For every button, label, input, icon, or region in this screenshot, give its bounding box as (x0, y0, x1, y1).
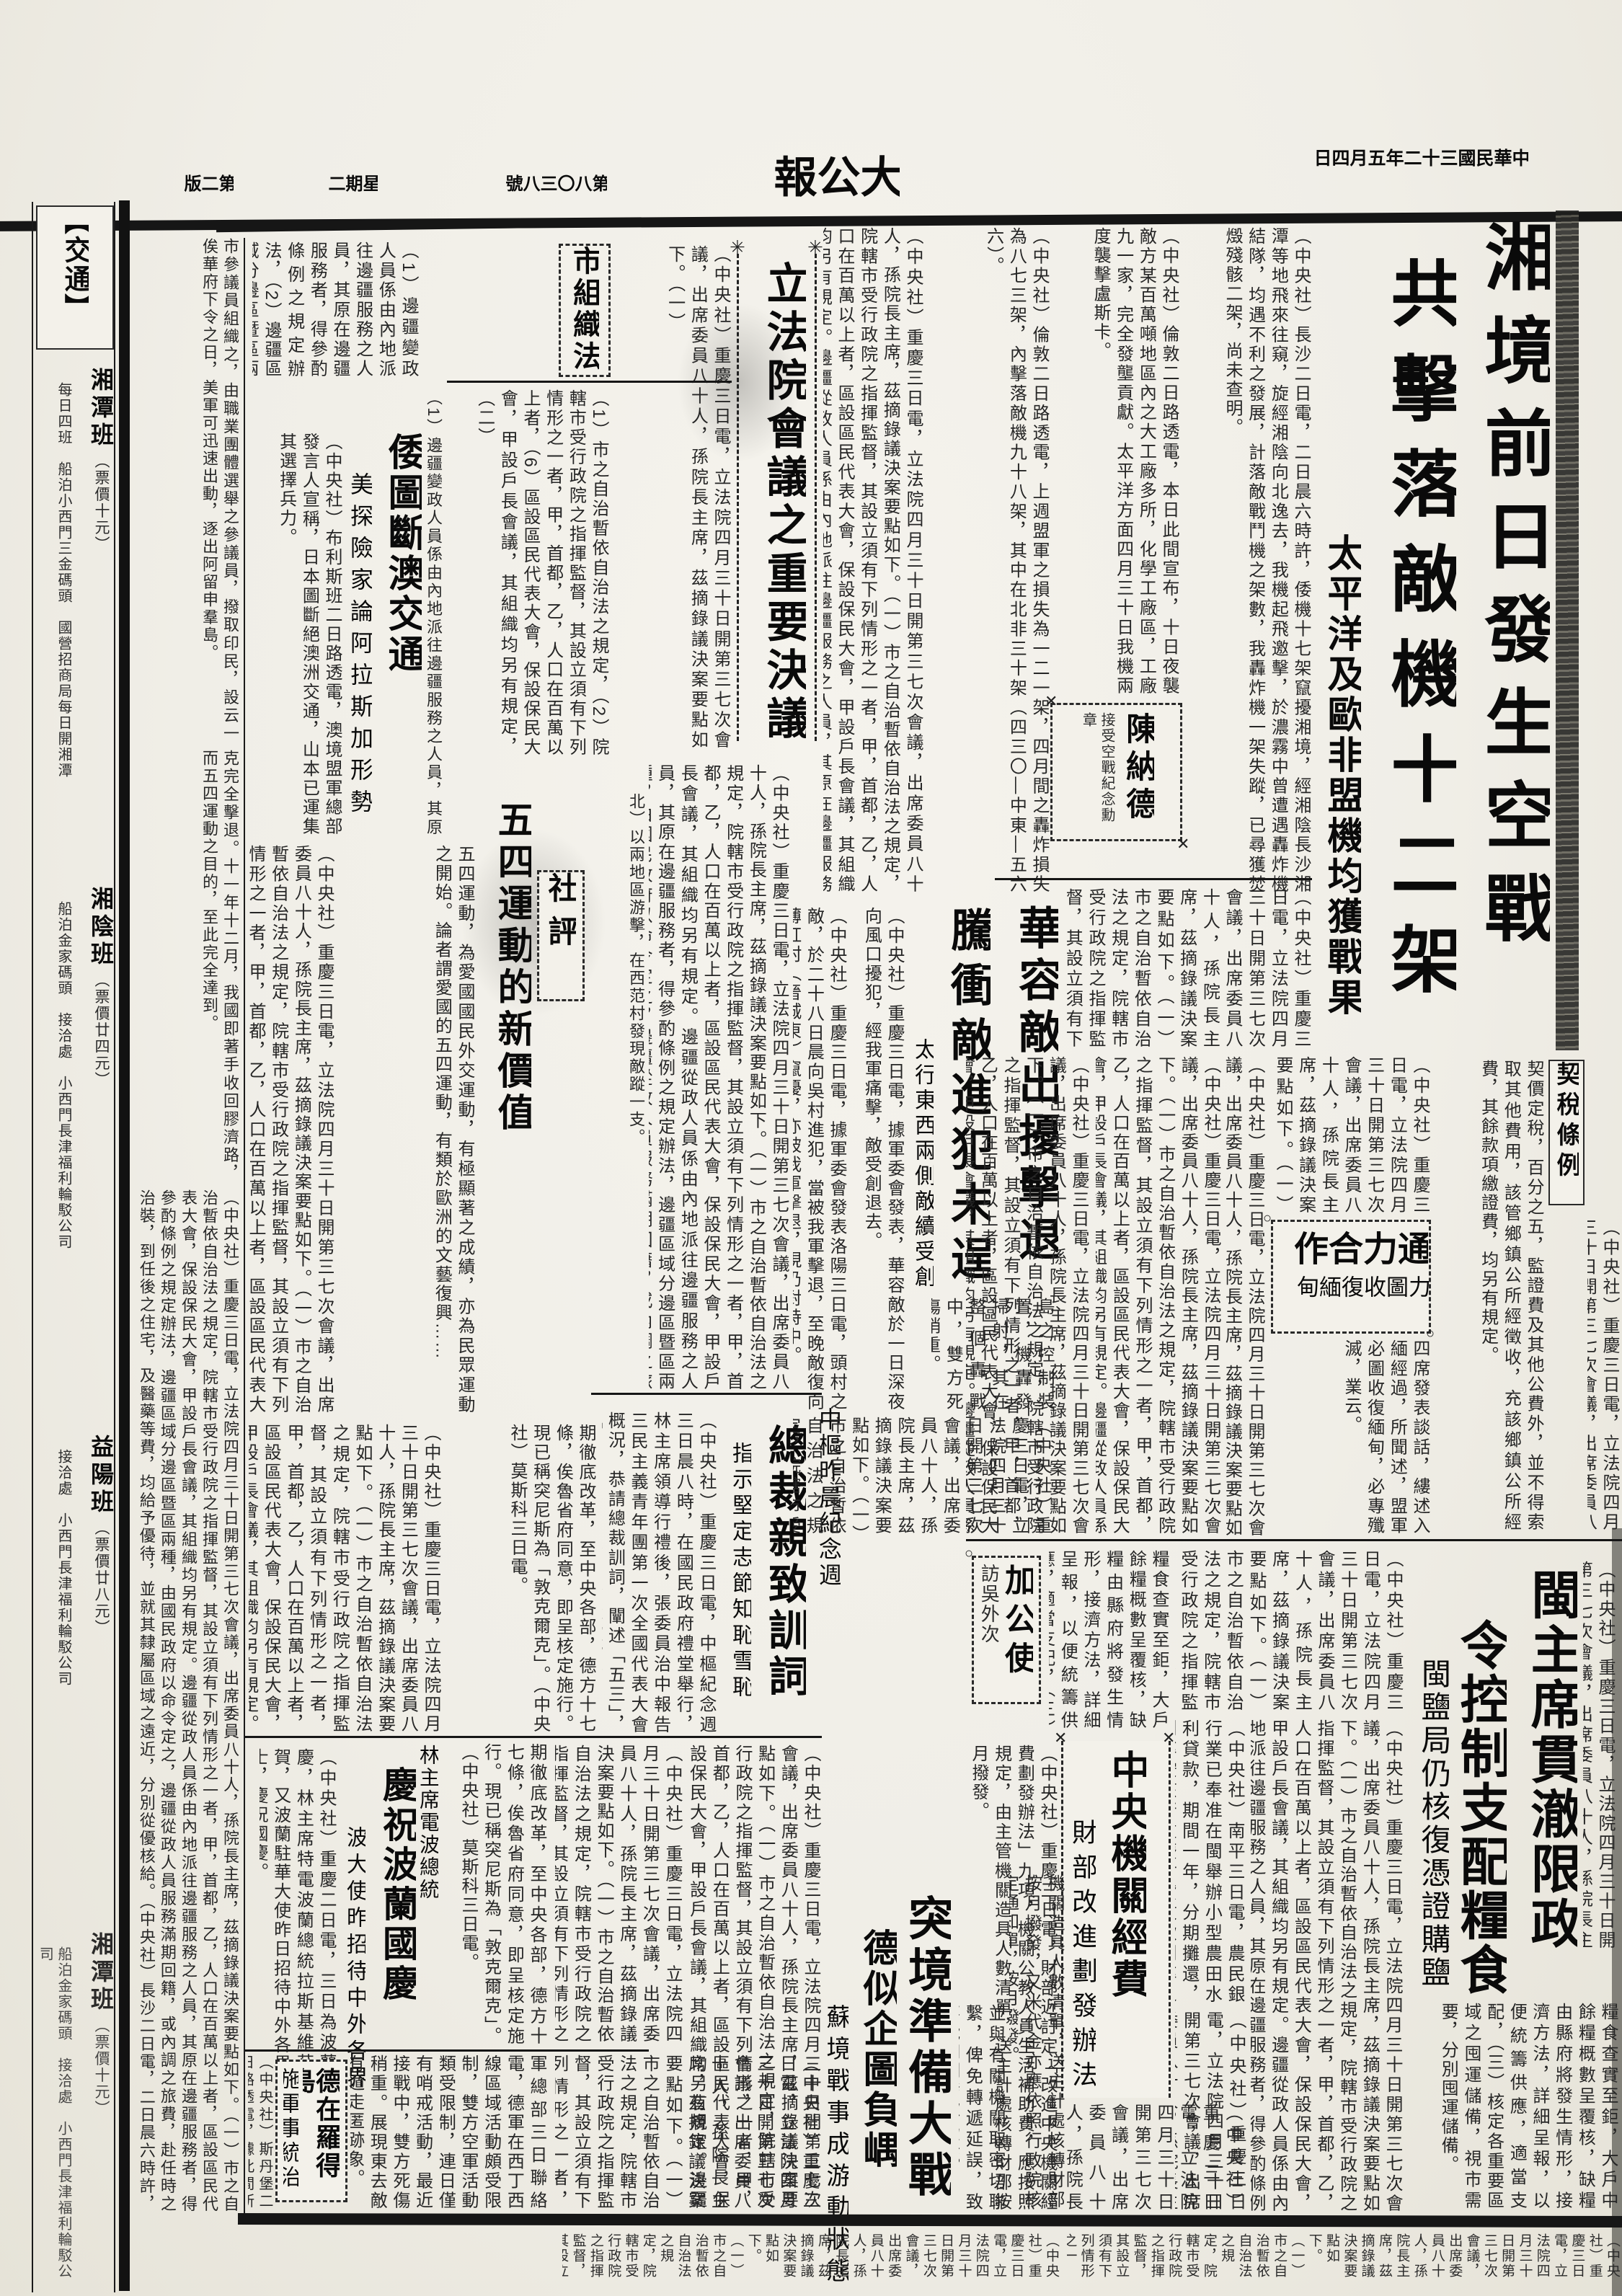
section-rule (447, 381, 732, 383)
editorial-label-box: 社評 (537, 870, 585, 1001)
lead-body-col4: （中央社）重慶三日電，立法院四月三十日開第三七次會議，出席委員八十人，孫院長主席… (823, 227, 924, 894)
editorial-body-col2: （中央社）重慶三日電，立法院四月三十日開第三七次會議，出席委員八十人，孫院長主席… (245, 845, 335, 1414)
tax-headline: 契稅條例 (1554, 1061, 1579, 1204)
column-divider (244, 238, 245, 2213)
masthead-weekday: 星期二 (309, 174, 378, 195)
ad-route-name: 湘潭班 (88, 1932, 114, 2014)
ads-header-label: 交通 (61, 236, 89, 293)
box-cross-icon: ✕ (1162, 1730, 1175, 1746)
tunisia-headline-1: 突境準備大戰 (899, 1894, 951, 2206)
australia-subheadline: 美探險家論阿拉斯加形勢 (346, 472, 372, 833)
funds-subheadline: 財部改進劃發辦法 (1067, 1819, 1096, 2096)
scan-streak-right (1556, 210, 1579, 1050)
editorial-continuation-col: 克完全擊退。十一年十二月，我國即著手收回膠濟路，而五四運動之目的，至此完全達到。 (136, 750, 241, 1182)
flower-mark-icon: ✳ (730, 238, 745, 257)
cooperation-box: 通力合作 力圖收復緬甸 (1271, 1220, 1431, 1334)
right-edge-col2: （中央社）重慶三日電，立法院四月三十日開第三七次會議，出席委員八十人，孫院長主席… (1583, 1561, 1616, 1950)
bracket-close-icon: 】 (61, 293, 89, 322)
fujian-headline-2: 令控制支配糧食 (1450, 1618, 1507, 1999)
war-body-col2: （中央社）重慶三日電，據軍委會發表洛陽三日電，頭村之敵，於二十八日晨向吳村進犯，… (793, 907, 848, 1411)
guerrilla-frag: 北）以兩地區游擊，在西范村發現敵蹤一支。 (609, 793, 647, 1153)
funds-headline: 中央機關經費 (1102, 1750, 1146, 2003)
poland-body: （中央社）重慶二日電，三日為波蘭國慶，林主席特電波蘭總統拉斯基維茲致賀，又波蘭駐… (260, 1748, 337, 2093)
news-text-block: （中央社）重慶三日電，立法院四月三十日開第三七次會議，出席委員八十人，孫院長主席… (1251, 1719, 1404, 2213)
news-text-block: 期徹底改革，至中央各部，德方十七條，俟魯省府同意，即呈核定施行。現已稱突尼斯為「… (447, 1424, 597, 1734)
legislature-body: （中央社）重慶三日電，立法院四月三十日開第三七次會議，出席委員八十人，孫院長主席… (613, 245, 732, 750)
news-text-block: （中央社）重慶三日電，立法院四月三十日開第三七次會議，出席委員八十人，孫院長主席… (555, 1745, 683, 2044)
bottom-rule (238, 2213, 1622, 2228)
bottom-strip-left: （中央社）重慶三日電，立法院四月三十日開第三七次會議，出席委員八十人，孫院長主席… (562, 2233, 1060, 2292)
section-rule (591, 1393, 822, 1395)
canada-subheadline: 訪吳外次 (980, 1564, 1001, 1696)
war-body-col1: （中央社）重慶三日電，據軍委會發表，華容敵於一日深夜向風口擾犯，經我軍痛擊，敵受… (851, 907, 905, 1411)
news-text-block: （中央社）重慶三日電，立法院四月三十日開第三七次會議，出席委員八十人，孫院長主席… (793, 1417, 1052, 1535)
wavy-rule-left (737, 254, 739, 741)
citylaw-headline: 市組織法 (570, 246, 599, 375)
ad-route-name: 益陽班 (88, 1435, 114, 1517)
ads-rule-right (114, 202, 115, 2292)
box-cross-icon: ✕ (1176, 836, 1189, 852)
newspaper-page: 第二版 星期二 第八〇三八號 大公報 中華民國三十二年五月四日 湘境前日發生空戰… (0, 0, 1622, 2296)
ad-fare: （票價十元） (93, 453, 110, 552)
editorial-body-col1: 五四運動，為愛國國民外交運動，有極顯著之成績，亦為民眾運動之開始。論者謂愛國的五… (339, 845, 476, 1414)
poland-headline: 慶祝波蘭國慶 (365, 1766, 416, 2005)
tunisia-body-col1: 機關造具人數清單，送主計處核轉財部按月撥發，又米代金亦應依照行政院核定通知單，按… (1009, 1874, 1065, 2209)
ad-entry: 湘陰班 （票價廿四元） (75, 887, 112, 1348)
left-news-col: （中央社）重慶三日電，立法院四月三十日開第三七次會議，出席委員八十人，孫院長主席… (136, 1189, 241, 2213)
ad-route-name: 湘陰班 (88, 887, 114, 969)
australia-body: （中央社）布利斯班二日路透電，澳境盟軍總部發言人宣稱，日本圖斷絕澳洲交通，山本已… (252, 433, 343, 836)
masthead-date: 中華民國三十二年五月四日 (1275, 149, 1528, 170)
chennault-box: 陳納德 接受空戰紀念勳章 (1050, 703, 1182, 841)
editorial-headline: 五四運動的新價值 (479, 800, 531, 1136)
section-rule (966, 1539, 1622, 1541)
poland-subheadline: 波大使昨招待中外各界 (341, 1826, 365, 2093)
mid-col-block1: （中央社）重慶三日電，立法院四月三十日開第三七次會議，出席委員八十人，孫院長主席… (1096, 1056, 1222, 1535)
news-text-block: （中央社）重慶三日電，立法院四月三十日開第三七次會議，出席委員八十人，孫院長主席… (1067, 2104, 1244, 2212)
ad-route-name: 湘潭班 (88, 368, 114, 450)
ad-fare: （票價廿四元） (93, 972, 110, 1088)
lead-headline-line2: 共擊落敵機十二架 (1371, 256, 1456, 1020)
tax-label-box: 契稅條例 (1548, 1060, 1585, 1205)
ad-fare: （票價十元） (93, 2017, 110, 2117)
section-rule (245, 2049, 649, 2052)
editorial-label: 社評 (546, 872, 576, 999)
rhodes-body-right: 軍總部三日聯絡電，德軍在西丁西線區域活動頗受限制，雙方空軍活動類受限制，連日僅有… (350, 2055, 548, 2210)
ad-entry: 益陽班 （票價廿八元） (75, 1435, 112, 1881)
news-text-block: （1）邊疆變政人員係由內地派往邊疆服務之人員，其原在邊疆服務者，得參酌條例之規定… (252, 241, 420, 378)
farm-bank-body: （中央社）南平三日電，農民銀行業已奉准在閩舉辦小型農田水利貸款，期間一年，分期攤… (1175, 1719, 1246, 2004)
ad-note: 船泊金家碼頭 接洽處 小西門長津福利輪駁公司 (37, 1946, 72, 2285)
box-circle-icon: ○ (1263, 1211, 1272, 1225)
news-text-block: （中央社）重慶三日電，立法院四月三十日開第三七次會議，出席委員八十人，孫院長主席… (555, 2055, 820, 2210)
box-circle-icon: ○ (1426, 1326, 1435, 1341)
masthead-edition: 第二版 (167, 174, 234, 195)
canada-headline: 加公使 (1005, 1564, 1033, 1696)
rhodes-body-left: （中央社）斯丹堡二日路透電，據此間所得消息，德軍在羅得島已施行軍事統治。 (248, 2055, 274, 2209)
ad-note: 每日四班 船泊小西門三金碼頭 國營招商局每日開湘潭 (37, 382, 72, 843)
box-cross-icon: ✕ (1045, 693, 1058, 709)
flower-mark-icon: ✳ (807, 238, 823, 257)
news-text-block: （中央社）重慶三日電，立法院四月三十日開第三七次會議，出席委員八十人，孫院長主席… (1175, 1550, 1404, 1712)
citylaw-body: （1）市之自治暫依自治法之規定，（2）院轄市受行政院之指揮監督，其設立須有下列情… (446, 389, 610, 757)
australia-headline: 倭圖斷澳交通 (373, 433, 422, 675)
poland-kicker: 林主席電波總統 (412, 1745, 438, 1905)
rhodes-headline-2: 施軍事統治 (283, 2067, 298, 2194)
lead-subheadline: 太平洋及歐非盟機均獲戰果 (1313, 533, 1361, 1021)
section-rule (995, 878, 1312, 880)
chennault-headline: 陳納德 (1122, 712, 1154, 832)
ads-header-box: 【交通】 (36, 205, 114, 350)
ads-header: 【交通】 (61, 207, 89, 348)
box-cross-icon: ✕ (1054, 1730, 1067, 1746)
masthead-title: 大公報 (744, 154, 900, 202)
chennault-subheadline: 接受空戰紀念勳章 (1078, 712, 1115, 832)
section-rule (245, 1736, 822, 1738)
ad-note: 接洽處 小西門長津福利輪駁公司 (37, 1449, 72, 1910)
right-edge-col: （中央社）重慶三日電，立法院四月三十日開第三七次會議，出席委員八十人，孫院長主席… (1587, 1218, 1621, 1532)
ad-note: 船泊金家碼頭 接洽處 小西門長津福利輪駁公司 (37, 901, 72, 1377)
legislature-headline: 立法院會議之重要決議 (748, 261, 806, 745)
wavy-rule-right (815, 254, 817, 741)
tunisia-headline-2: 德似企圖負嵎 (851, 1928, 897, 2173)
bottom-strip-right: （中央社）重慶三日電，立法院四月三十日開第三七次會議，出席委員八十人，孫院長主席… (1067, 2233, 1621, 2292)
news-text-block: （中央社）重慶三日電，立法院四月三十日開第三七次會議，出席委員八十人，孫院長主席… (1271, 1056, 1431, 1215)
box-circle-icon: ○ (965, 1546, 973, 1561)
rhodes-box: 德在羅得島 施軍事統治 (275, 2060, 347, 2202)
news-text-block: 期徹底改革，至中央各部，德方十七條，俟魯省府同意，即呈核定施行。現已稱突尼斯為「… (441, 1743, 548, 2046)
cooperation-headline: 通力合作 (1275, 1231, 1428, 1268)
president-subheadline: 指示堅定志節知恥雪恥 (722, 1442, 751, 1703)
cooperation-subheadline: 力圖收復緬甸 (1276, 1275, 1429, 1303)
ads-rule-left (32, 202, 33, 2292)
frontier-ordinance-body: （1）邊疆變政人員係由內地派往邊疆服務之人員，其原在邊疆服務者，得參酌條例之規定… (427, 389, 444, 836)
lead-body-col1: （中央社）長沙二日電，二日晨六時許，倭機十七架竄擾湘境，經湘陰長沙湘潭等地飛來往… (1184, 227, 1312, 894)
tunisia-body-col2: 並與有關機關取密切聯繫，俾免轉遞延誤，致不能如期發款為要。 (959, 2004, 1006, 2212)
ad-fare: （票價廿八元） (93, 1520, 110, 1636)
lead-body-col2: （中央社）倫敦二日路透電，本日此間宣布，十日夜襲敵方某百萬噸地區內之大工廠多所，… (1054, 227, 1180, 696)
canada-box: 加公使 訪吳外次 (972, 1556, 1041, 1704)
lead-body-col3: （中央社）倫敦二日路透電，上週盟軍之損失為一二一架，四月間之轟炸損失為八七三架，… (928, 227, 1050, 894)
column-divider-heavy (119, 200, 130, 2291)
mid-news-block: （中央社）重慶三日電，立法院四月三十日開第三七次會議，出席委員八十人，孫院長主席… (649, 764, 790, 1391)
news-text-block: （中央社）重慶三日電，立法院四月三十日開第三七次會議，出席委員八十人，孫院長主席… (1226, 1056, 1266, 1538)
news-text-block: （中央社）重慶三日電，立法院四月三十日開第三七次會議，出席委員八十人，孫院長主席… (249, 1424, 442, 1734)
war-subheadline: 太行東西兩側敵續受創 (910, 1038, 934, 1292)
president-body: （中央社）重慶三日電，中樞紀念週三日晨八時，在國民政府禮堂舉行，林主席領導行禮後… (602, 1411, 717, 1734)
fujian-subheadline: 閩鹽局仍核復憑證購鹽 (1414, 1658, 1449, 1991)
fujian-headline-1: 閩主席貫澈限政 (1505, 1568, 1577, 1953)
ad-entry: 湘潭班 （票價十元） (75, 1932, 112, 2278)
exam-news-block: （中央社）重慶三日電，立法院四月三十日開第三七次會議，出席委員八十人，孫院長主席… (1067, 888, 1312, 1049)
tax-body: 契價定稅，百分之五，監證費及其他公費外，並不得索取其他費用，該管鄉鎮公所經徵收，… (1438, 1060, 1545, 1532)
masthead-issue-number: 第八〇三八號 (480, 174, 607, 195)
citylaw-box: 市組織法 (559, 244, 611, 377)
lead-headline-line1: 湘境前日發生空戰 (1465, 220, 1550, 970)
fujian-body: 糧食查實至鉅，大戶中餘糧概數呈覆核，缺糧由縣府將發生情形，接濟方法，詳細呈報，以… (1406, 2003, 1619, 2210)
cooperation-body: 四席發表談話，縷述入緬經過，所聞述，盟軍必圖收復緬甸，必專殲滅，業云。 (1271, 1339, 1431, 1535)
rhodes-headline-1: 德在羅得島 (303, 2067, 340, 2194)
council-news-col: 市參議員組織之，由職業團體選舉之參議員，撥取印民，設云一俟華府下令之日，美軍可迅… (136, 238, 241, 743)
bracket-open-icon: 【 (61, 207, 89, 236)
grain-body: 糧食查實至鉅，大戶餘糧概數呈覆核，缺糧由縣府將發生情形，接濟方法，詳細呈報，以便… (1049, 1550, 1170, 1730)
ad-entry: 湘潭班 （票價十元） (75, 368, 112, 800)
